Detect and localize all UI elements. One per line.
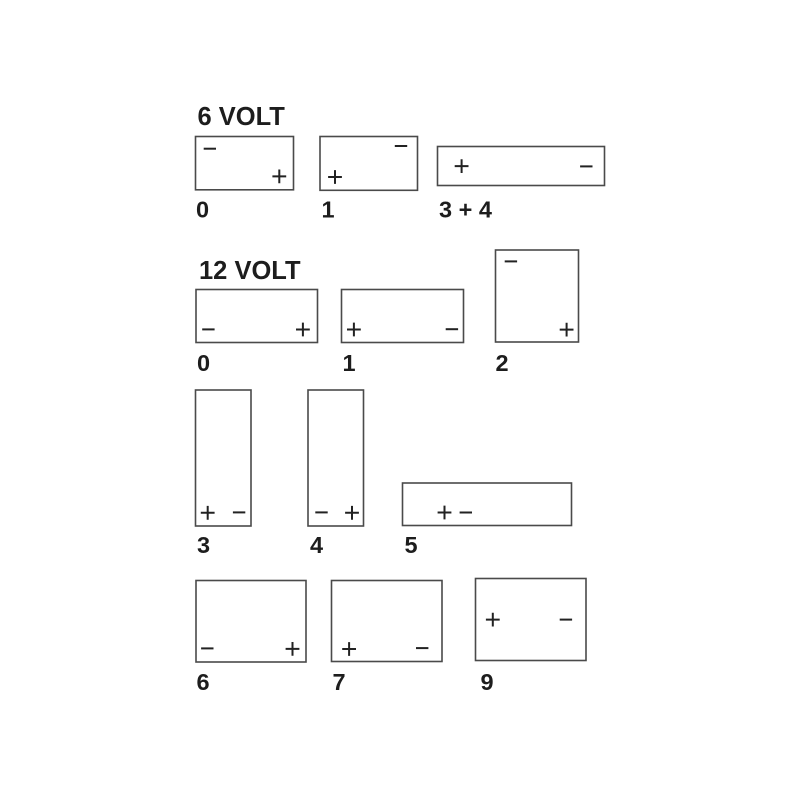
svg-text:3 + 4: 3 + 4	[439, 197, 492, 223]
svg-text:4: 4	[310, 532, 323, 558]
svg-text:2: 2	[496, 350, 509, 376]
svg-text:1: 1	[322, 197, 335, 223]
svg-text:1: 1	[343, 350, 356, 376]
svg-text:3: 3	[197, 532, 210, 558]
svg-text:9: 9	[481, 669, 494, 695]
svg-text:6: 6	[197, 669, 210, 695]
svg-text:7: 7	[333, 669, 346, 695]
svg-text:12 VOLT: 12 VOLT	[199, 257, 301, 285]
svg-text:0: 0	[197, 350, 210, 376]
svg-text:6 VOLT: 6 VOLT	[198, 103, 286, 131]
svg-text:5: 5	[405, 532, 418, 558]
svg-text:0: 0	[196, 197, 209, 223]
